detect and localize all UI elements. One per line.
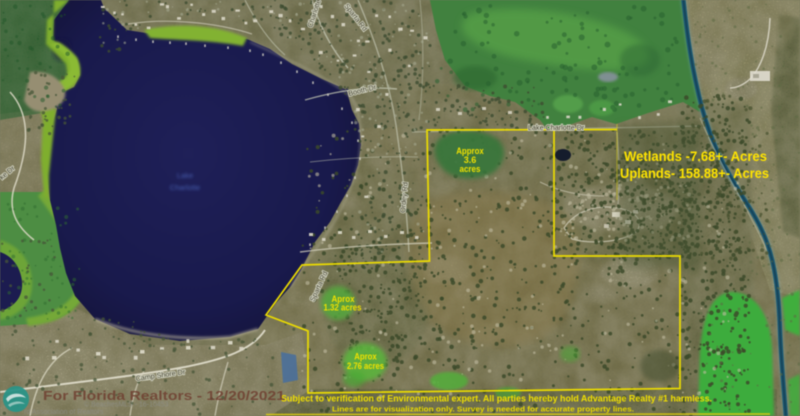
svg-text:Lines are for visualization on: Lines are for visualization only. Survey… — [332, 405, 634, 414]
svg-text:Uplands- 158.88+- Acres: Uplands- 158.88+- Acres — [620, 166, 769, 181]
svg-text:2.76 acres: 2.76 acres — [347, 361, 384, 371]
svg-text:1.32 acres: 1.32 acres — [324, 303, 362, 313]
svg-text:Aprox: Aprox — [354, 352, 377, 362]
svg-text:Lake: Lake — [177, 171, 193, 180]
svg-text:Lake Charlotte Dr: Lake Charlotte Dr — [528, 123, 585, 132]
svg-text:rd Association of Realtors: rd Association of Realtors — [24, 409, 104, 416]
svg-text:acres: acres — [460, 164, 481, 174]
svg-text:Subject to verification of En: Subject to verification of Environmental… — [281, 394, 712, 404]
svg-text:© BeachesMLS - 16-10453: © BeachesMLS - 16-10453 — [84, 401, 169, 409]
svg-text:Charlotte: Charlotte — [170, 183, 200, 192]
svg-text:Wetlands -7.68+- Acres: Wetlands -7.68+- Acres — [624, 149, 767, 164]
